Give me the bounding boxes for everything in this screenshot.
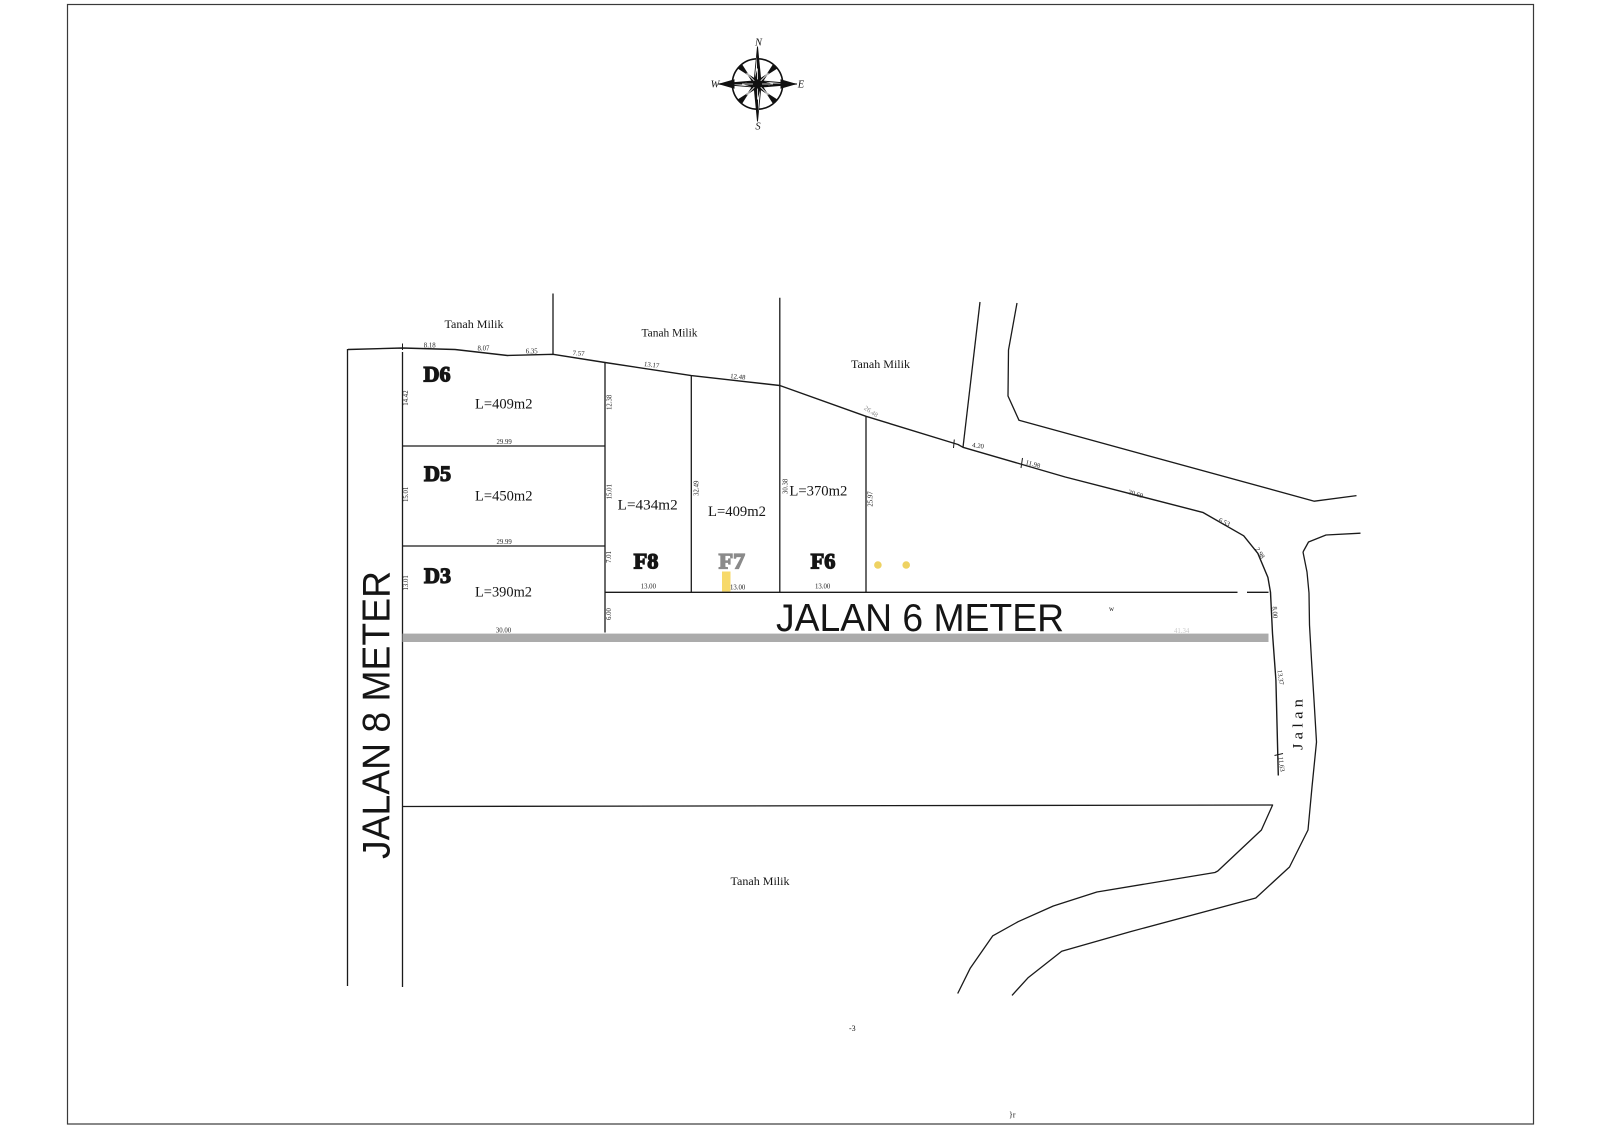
svg-text:L=409m2: L=409m2 — [708, 504, 766, 520]
svg-text:Tanah Milik: Tanah Milik — [851, 357, 910, 371]
svg-text:29.99: 29.99 — [497, 539, 513, 546]
svg-text:L=450m2: L=450m2 — [475, 489, 533, 505]
svg-text:6.35: 6.35 — [526, 349, 538, 356]
svg-text:E: E — [797, 80, 805, 91]
svg-text:S: S — [755, 122, 761, 133]
svg-text:30.00: 30.00 — [496, 628, 512, 635]
svg-text:JALAN 8 METER: JALAN 8 METER — [356, 571, 399, 859]
svg-text:29.99: 29.99 — [497, 439, 513, 446]
svg-text:L=370m2: L=370m2 — [789, 484, 847, 500]
svg-text:7.57: 7.57 — [572, 350, 585, 358]
svg-text:15.01: 15.01 — [403, 487, 410, 502]
svg-text:12.38: 12.38 — [607, 394, 614, 410]
svg-text:F6: F6 — [811, 549, 836, 574]
svg-text:JALAN 6 METER: JALAN 6 METER — [776, 597, 1064, 640]
svg-text:13.00: 13.00 — [815, 584, 831, 591]
svg-text:8.18: 8.18 — [424, 343, 436, 350]
svg-text:13.00: 13.00 — [730, 585, 746, 592]
svg-text:F8: F8 — [634, 549, 659, 574]
svg-text:N: N — [754, 38, 763, 49]
svg-text:14.42: 14.42 — [403, 390, 410, 406]
svg-text:8.00: 8.00 — [1271, 606, 1279, 619]
svg-text:J a l a n: J a l a n — [1291, 698, 1307, 750]
svg-text:41.34: 41.34 — [1174, 628, 1190, 635]
svg-text:W: W — [711, 80, 721, 91]
svg-text:D6: D6 — [424, 362, 451, 387]
svg-text:32.49: 32.49 — [694, 480, 701, 496]
svg-text:30.38: 30.38 — [783, 478, 790, 494]
svg-text:Tanah Milik: Tanah Milik — [642, 326, 698, 340]
svg-text:-3: -3 — [849, 1024, 856, 1033]
svg-text:}r: }r — [1009, 1111, 1016, 1120]
svg-text:F7: F7 — [719, 549, 746, 574]
svg-text:L=434m2: L=434m2 — [618, 498, 678, 514]
svg-text:L=409m2: L=409m2 — [475, 397, 533, 413]
svg-text:15.01: 15.01 — [607, 484, 614, 499]
svg-text:D5: D5 — [424, 461, 451, 486]
svg-text:7.01: 7.01 — [606, 551, 613, 563]
svg-text:L=390m2: L=390m2 — [475, 585, 532, 601]
svg-text:D3: D3 — [424, 563, 451, 588]
svg-text:13.00: 13.00 — [641, 584, 657, 591]
svg-text:25.97: 25.97 — [868, 491, 875, 507]
svg-text:Tanah Milik: Tanah Milik — [731, 874, 790, 888]
svg-text:6.00: 6.00 — [606, 608, 613, 620]
svg-text:Tanah Milik: Tanah Milik — [445, 317, 504, 331]
svg-text:13.01: 13.01 — [403, 575, 410, 590]
svg-text:8.07: 8.07 — [478, 346, 490, 353]
